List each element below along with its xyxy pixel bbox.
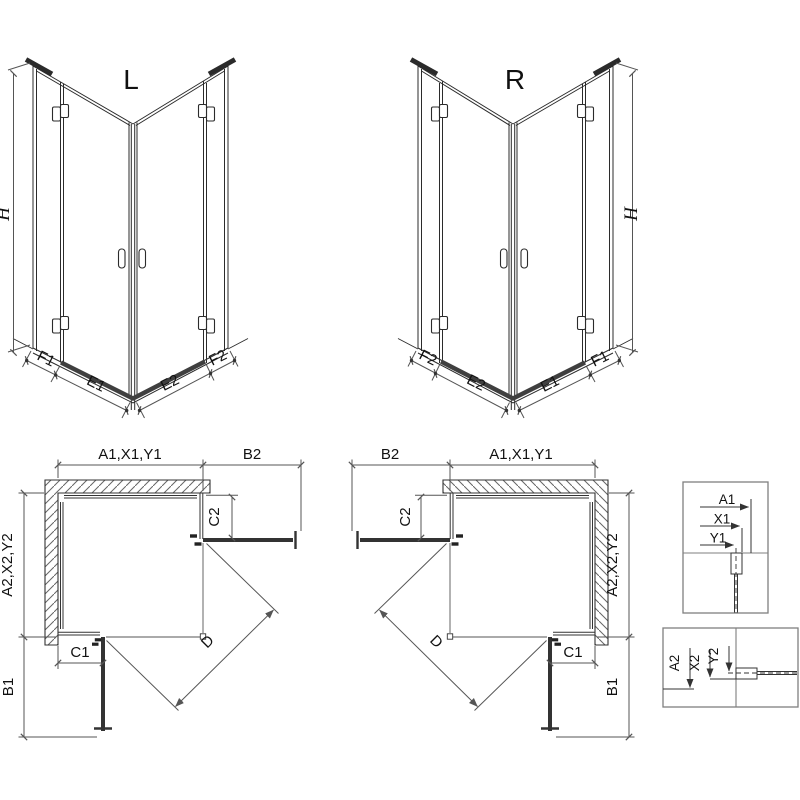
dim-label-width-left: A1,X1,Y1 [98,446,161,463]
dim-label-b2-left: B2 [243,446,261,463]
detail-box-width-refs: A1 X1 Y1 [683,482,768,613]
dim-label-c1-right: C1 [563,644,582,661]
dim-label-c2-left: C2 [206,507,223,526]
pivot-hinge-marks [92,534,202,646]
open-door-panels [94,531,296,731]
dim-label-height-left: H [0,206,14,222]
view-title-left: L [123,64,139,95]
view-title-right: R [505,64,525,95]
closed-door-outline [106,543,206,639]
detail-label-y1: Y1 [710,531,727,546]
floor-context-lines [13,339,248,350]
dim-label-diagonal-right: D [426,632,446,652]
detail-box-depth-refs: A2 X2 Y2 [663,628,798,707]
dim-label-height-right: H [621,206,642,222]
dim-label-f2-left: F2 [206,346,229,369]
front-view-right-labels: R H F2 E2 E1 F1 [416,64,642,396]
diagonal-entry-dimension [107,544,279,711]
dim-label-b1-left: B1 [0,678,17,696]
plan-view-right-geometry [349,460,635,741]
door-hinges [53,105,215,334]
dim-label-b1-right: B1 [604,678,621,696]
detail-label-a1: A1 [719,492,736,507]
bottom-threshold-rail [61,362,205,399]
detail-label-x2: X2 [687,655,702,672]
dim-label-f2-right: F2 [416,346,439,369]
door-handles [119,249,146,268]
detail-label-x1: X1 [714,512,731,527]
detail-label-a2: A2 [667,655,682,672]
bottom-width-dimensions [23,351,239,418]
shower-enclosure-technical-drawing: A1 X1 Y1 A2 X2 Y2 L H F1 E1 E2 F2 R H [0,0,800,800]
dim-label-b2-right: B2 [381,446,399,463]
wall-section-hatched [45,480,210,645]
dim-label-c2-right: C2 [397,507,414,526]
plan-dimension-lines [19,460,305,741]
dim-label-depth-left: A2,X2,Y2 [0,533,16,596]
dim-label-depth-right: A2,X2,Y2 [604,533,621,596]
dim-label-c1-left: C1 [70,644,89,661]
glass-panels-plan [58,493,203,635]
detail-label-y2: Y2 [706,648,721,665]
dim-label-width-right: A1,X1,Y1 [489,446,552,463]
